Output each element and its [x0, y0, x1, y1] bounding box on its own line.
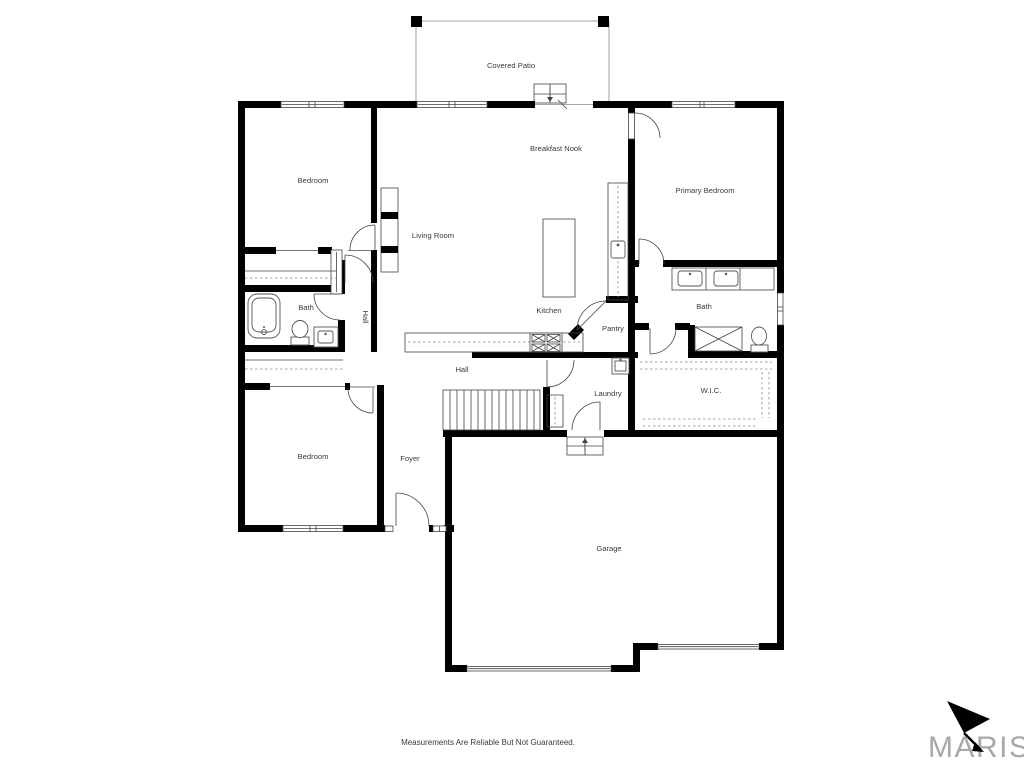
kitchen-fixtures	[405, 183, 628, 352]
utility-sink-icon	[612, 358, 629, 374]
bathtub-icon	[248, 294, 280, 338]
window-bedroom-top	[281, 102, 344, 108]
room-label-breakfast-nook: Breakfast Nook	[530, 144, 582, 153]
room-label-kitchen: Kitchen	[536, 306, 561, 315]
shower-icon	[695, 327, 742, 351]
window-primary-bedroom	[672, 102, 735, 108]
room-labels: Covered Patio Breakfast Nook Bedroom Pri…	[298, 61, 735, 553]
primary-bath-door	[639, 239, 664, 264]
bath-left-door	[314, 294, 340, 320]
step-arrow-down-icon	[547, 97, 553, 102]
garage-entry-door	[572, 402, 600, 430]
room-label-bedroom-top: Bedroom	[298, 176, 329, 185]
stairs	[443, 390, 540, 430]
covered-patio-outline	[411, 16, 609, 103]
room-label-primary-bedroom: Primary Bedroom	[675, 186, 734, 195]
kitchen-sink-icon	[611, 241, 625, 258]
patio-post-right	[598, 16, 609, 27]
window-foyer-sidelite-right	[433, 526, 446, 532]
room-label-pantry: Pantry	[602, 324, 624, 333]
fireplace	[381, 188, 398, 272]
bedroom-bottom-door	[348, 388, 373, 413]
garage-steps	[567, 437, 603, 455]
window-bath-primary	[778, 293, 784, 325]
room-label-bedroom-bottom: Bedroom	[298, 452, 329, 461]
window-bedroom-bottom	[283, 526, 343, 532]
bedroom-top-door	[350, 225, 375, 250]
floor-plan-svg: Covered Patio Breakfast Nook Bedroom Pri…	[0, 0, 1024, 768]
front-door	[396, 493, 429, 526]
room-label-garage: Garage	[596, 544, 621, 553]
garage-door-front	[467, 667, 611, 672]
window-foyer-sidelite-left	[385, 526, 393, 532]
patio-door-sill	[535, 100, 593, 109]
toilet-primary-icon	[751, 327, 768, 352]
hall-top-door	[331, 250, 373, 294]
room-label-bath-primary: Bath	[696, 302, 712, 311]
room-label-foyer: Foyer	[400, 454, 420, 463]
wic-door	[650, 328, 676, 354]
room-label-bath-left: Bath	[298, 303, 314, 312]
pantry-door	[568, 301, 606, 340]
patio-step	[534, 84, 566, 103]
room-label-hall-center: Hall	[455, 365, 468, 374]
room-label-hall-left: Hall	[361, 310, 370, 323]
floor-plan-page: Covered Patio Breakfast Nook Bedroom Pri…	[0, 0, 1024, 768]
primary-bedroom-door	[629, 113, 661, 139]
bath-primary-fixtures	[672, 268, 774, 352]
room-label-laundry: Laundry	[594, 389, 622, 398]
double-vanity-icon	[672, 268, 774, 290]
laundry-fixtures	[612, 358, 629, 374]
toilet-left-icon	[291, 321, 309, 346]
patio-post-left	[411, 16, 422, 27]
interior-walls	[238, 108, 783, 525]
window-living	[417, 102, 487, 108]
room-label-wic: W.I.C.	[701, 386, 722, 395]
laundry-door	[547, 360, 574, 387]
room-label-covered-patio: Covered Patio	[487, 61, 535, 70]
vanity-left-icon	[314, 327, 338, 347]
footer-disclaimer: Measurements Are Reliable But Not Guaran…	[401, 738, 575, 747]
room-label-living-room: Living Room	[412, 231, 454, 240]
stove-icon	[530, 333, 562, 352]
kitchen-island	[543, 219, 575, 297]
step-arrow-up-icon	[582, 438, 588, 443]
maris-logo: MARIS	[928, 701, 1024, 764]
bath-left-fixtures	[248, 294, 338, 347]
garage-door-right	[658, 645, 759, 650]
